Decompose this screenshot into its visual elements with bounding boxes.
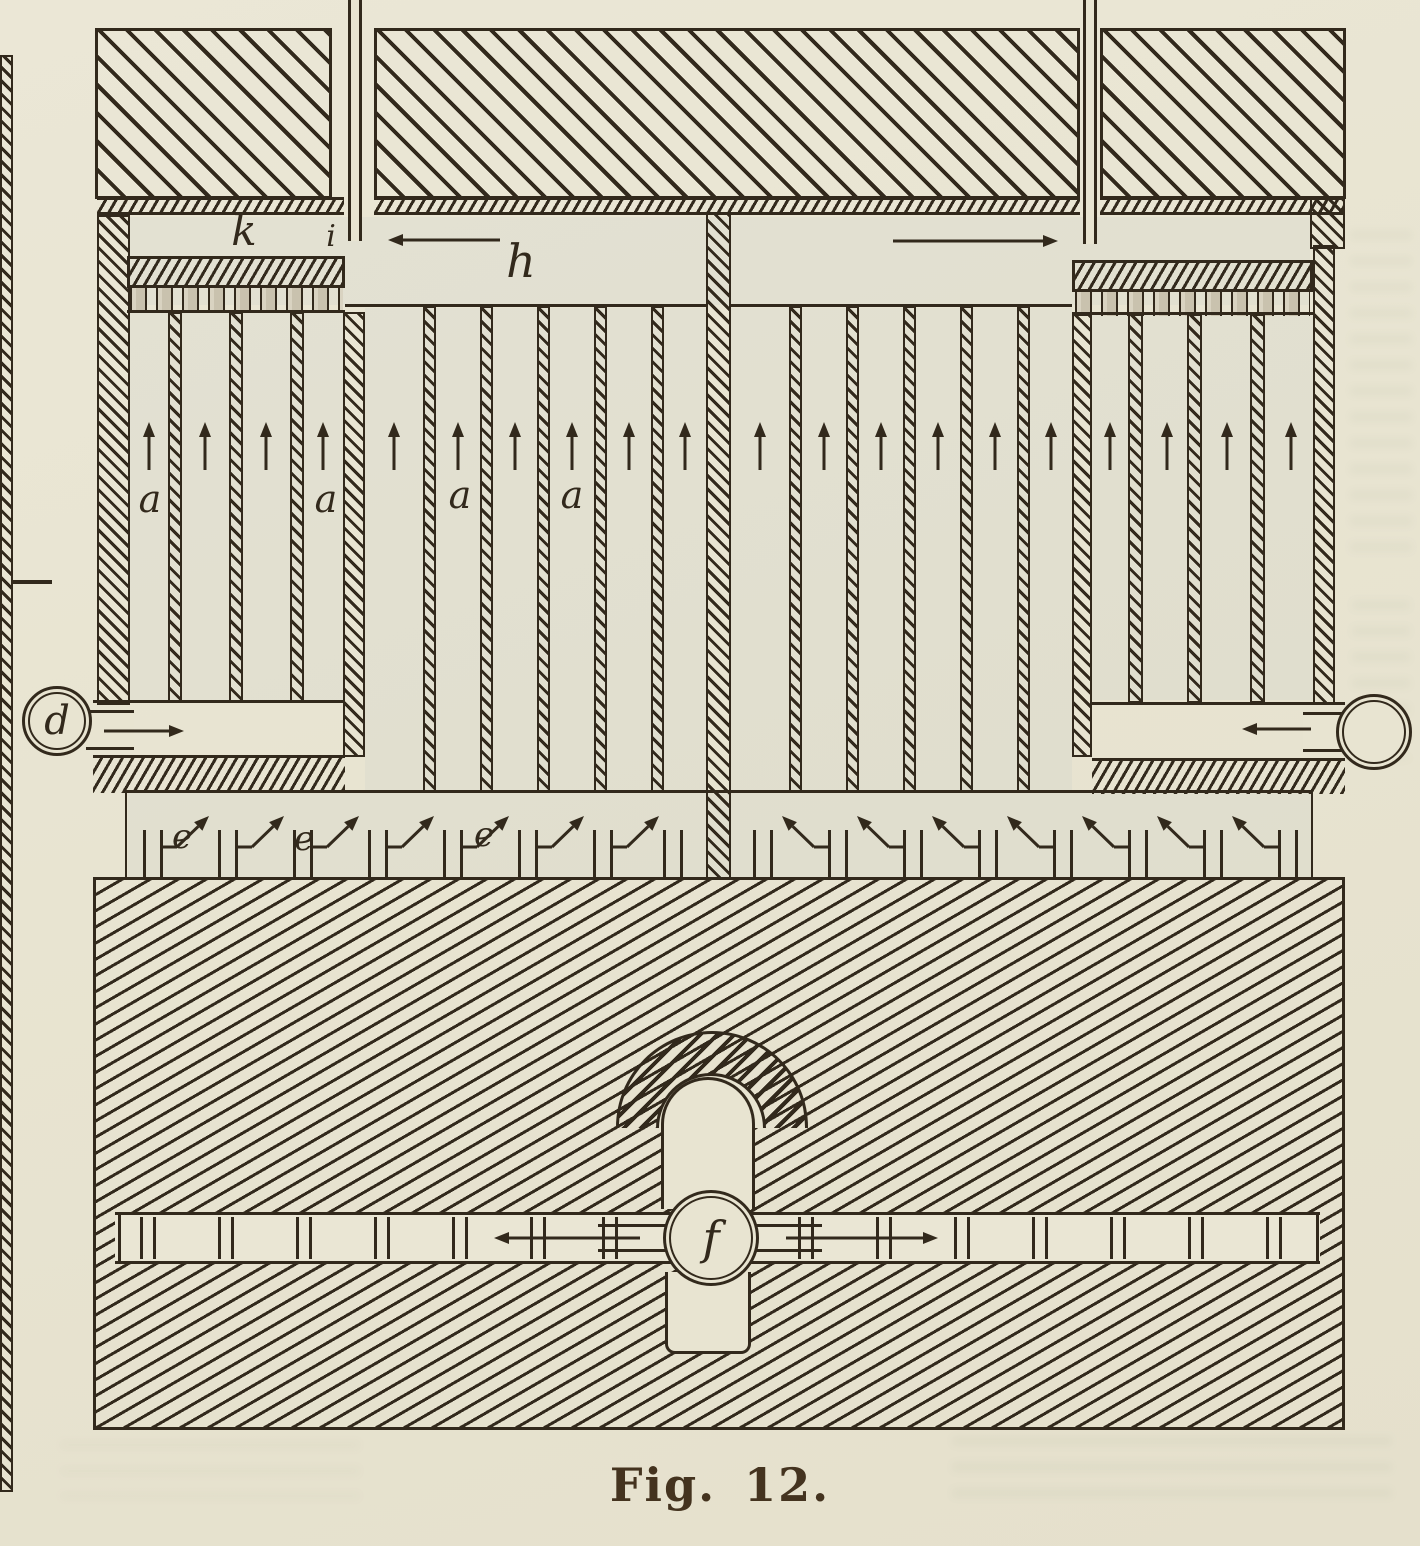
duct-joint (374, 1217, 390, 1259)
flue-port (143, 830, 163, 877)
label-e: e (474, 818, 494, 852)
wall-segment (960, 306, 973, 792)
line (118, 1212, 121, 1264)
wall-segment (1128, 314, 1143, 703)
wall-strip (97, 197, 344, 215)
flue-port (1128, 830, 1148, 877)
line (93, 700, 345, 703)
flue-port (1203, 830, 1223, 877)
wall-segment (537, 306, 550, 792)
duct-joint (218, 1217, 234, 1259)
line (1092, 702, 1345, 705)
wall-segment (1313, 245, 1335, 705)
valve-circle-f: f (663, 1190, 759, 1286)
line (1316, 1212, 1319, 1264)
outlet-circle-right (1336, 694, 1412, 770)
duct-joint (602, 1217, 618, 1259)
flue-port (1053, 830, 1073, 877)
flue-port (903, 830, 923, 877)
flue-port (218, 830, 238, 877)
wall-segment (1017, 306, 1030, 792)
duct-joint (296, 1217, 312, 1259)
label-d: d (44, 701, 70, 741)
floor-slab (1092, 758, 1345, 794)
label-a: a (315, 480, 338, 518)
shade (1092, 314, 1313, 700)
pipe (1083, 0, 1097, 244)
label-h: h (506, 238, 536, 284)
wall-segment (789, 306, 802, 792)
label-e: e (172, 820, 192, 854)
wall-segment (1250, 314, 1265, 703)
flue-port (1278, 830, 1298, 877)
showthrough-smudge (60, 1440, 360, 1500)
label-a: a (139, 480, 162, 518)
flue-port (663, 830, 683, 877)
checker-header (127, 256, 345, 288)
masonry-block (374, 28, 1080, 199)
wall-segment (168, 312, 182, 702)
showthrough-smudge (1350, 230, 1412, 560)
flue-port (443, 830, 463, 877)
wall-segment (594, 306, 607, 792)
flue-port (518, 830, 538, 877)
book-page: f d k i h a a a a e e e Fig. 12. (0, 0, 1420, 1546)
duct-joint (1110, 1217, 1126, 1259)
duct-joint (798, 1217, 814, 1259)
label-a: a (561, 476, 584, 514)
flue-port (593, 830, 613, 877)
showthrough-smudge (952, 1436, 1392, 1510)
label-e: e (294, 822, 314, 856)
flue-port (828, 830, 848, 877)
duct-joint (954, 1217, 970, 1259)
wall-segment (97, 215, 130, 705)
duct-joint (876, 1217, 892, 1259)
wall-segment (0, 55, 13, 1492)
duct-joint (140, 1217, 156, 1259)
masonry-block (95, 28, 332, 199)
duct-joint (530, 1217, 546, 1259)
duct-joint (1188, 1217, 1204, 1259)
wall-segment (423, 306, 436, 792)
wall-segment (229, 312, 243, 702)
wall-segment (1310, 197, 1345, 249)
label-i: i (326, 222, 336, 252)
duct-joint (452, 1217, 468, 1259)
label-k: k (231, 210, 256, 252)
label-f: f (702, 1215, 719, 1261)
checker-teeth (130, 288, 343, 312)
wall-segment (706, 213, 731, 879)
floor-slab (93, 755, 345, 793)
duct-joint (1266, 1217, 1282, 1259)
wall-segment (1072, 314, 1092, 757)
line (12, 580, 52, 584)
wall-strip (1100, 197, 1345, 215)
checker-header (1072, 260, 1313, 292)
wall-segment (480, 306, 493, 792)
pipe (348, 0, 362, 241)
wall-segment (903, 306, 916, 792)
flue-port (753, 830, 773, 877)
wall-segment (343, 312, 365, 757)
wall-segment (1187, 314, 1202, 703)
figure-caption: Fig. 12. (490, 1458, 950, 1512)
inlet-circle-d: d (22, 686, 92, 756)
flue-port (978, 830, 998, 877)
inlet-neck-left (86, 710, 134, 750)
wall-segment (651, 306, 664, 792)
wall-segment (846, 306, 859, 792)
label-a: a (449, 476, 472, 514)
masonry-block (1100, 28, 1346, 199)
flue-port (368, 830, 388, 877)
wall-segment (290, 312, 304, 702)
duct-joint (1032, 1217, 1048, 1259)
